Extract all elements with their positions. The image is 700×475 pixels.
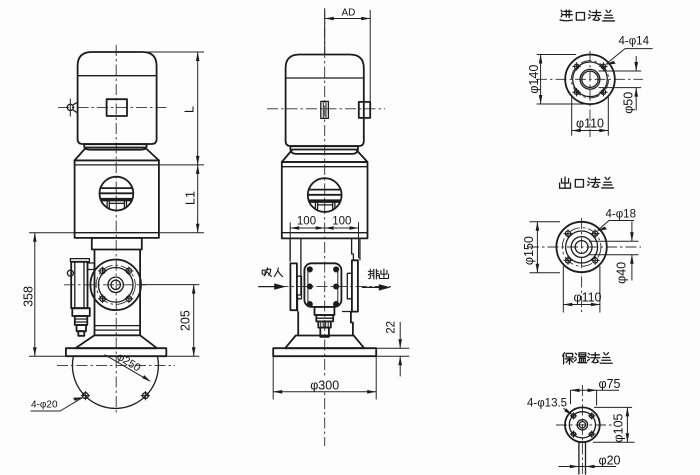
svg-text:4-φ18: 4-φ18 [606,209,636,221]
svg-text:100: 100 [297,215,316,227]
svg-text:φ50: φ50 [622,92,636,114]
svg-text:φ250: φ250 [115,351,143,374]
svg-text:100: 100 [332,215,351,227]
svg-text:L1: L1 [183,191,197,205]
svg-text:φ75: φ75 [599,377,621,391]
svg-text:φ150: φ150 [522,236,536,265]
svg-text:φ300: φ300 [310,378,339,392]
svg-text:L: L [182,106,196,113]
svg-text:358: 358 [22,286,36,307]
svg-text:φ20: φ20 [599,453,621,467]
svg-text:4-φ20: 4-φ20 [31,400,58,411]
svg-text:φ110: φ110 [576,117,604,131]
svg-text:AD: AD [342,7,356,18]
svg-text:205: 205 [179,310,193,331]
svg-text:φ105: φ105 [612,413,626,442]
svg-text:φ140: φ140 [527,65,541,94]
svg-text:22: 22 [386,321,398,334]
svg-text:φ110: φ110 [573,291,601,305]
svg-text:φ40: φ40 [614,262,628,284]
svg-text:4-φ13.5: 4-φ13.5 [527,398,567,410]
svg-text:4-φ14: 4-φ14 [619,36,650,48]
